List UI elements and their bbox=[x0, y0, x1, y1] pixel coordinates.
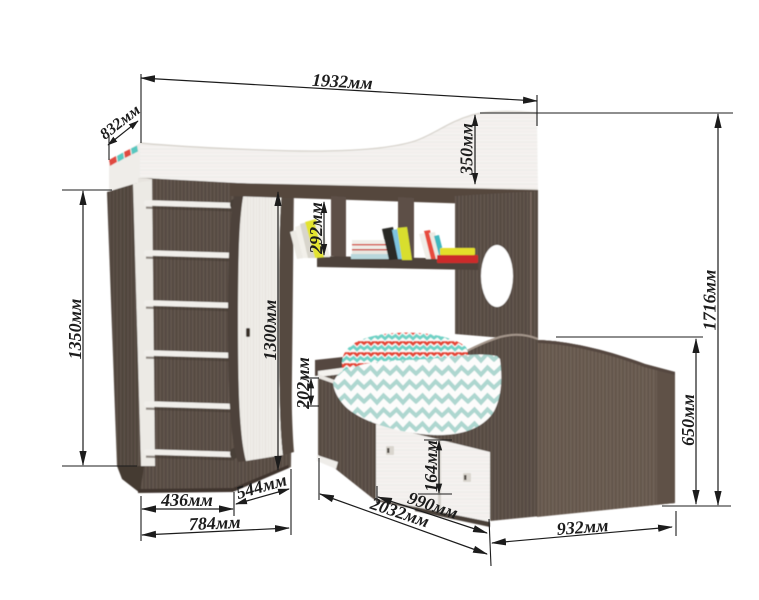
svg-text:164мм: 164мм bbox=[421, 440, 441, 492]
svg-text:350мм: 350мм bbox=[457, 123, 477, 176]
svg-text:436мм: 436мм bbox=[160, 490, 213, 510]
svg-text:1350мм: 1350мм bbox=[65, 299, 85, 360]
svg-text:784мм: 784мм bbox=[188, 512, 241, 534]
svg-text:1716мм: 1716мм bbox=[700, 270, 720, 331]
svg-text:202мм: 202мм bbox=[293, 357, 313, 410]
svg-text:650мм: 650мм bbox=[678, 394, 698, 446]
svg-text:932мм: 932мм bbox=[556, 515, 609, 539]
svg-text:1300мм: 1300мм bbox=[260, 300, 280, 361]
svg-text:1932мм: 1932мм bbox=[311, 70, 373, 93]
svg-text:292мм: 292мм bbox=[306, 202, 326, 255]
